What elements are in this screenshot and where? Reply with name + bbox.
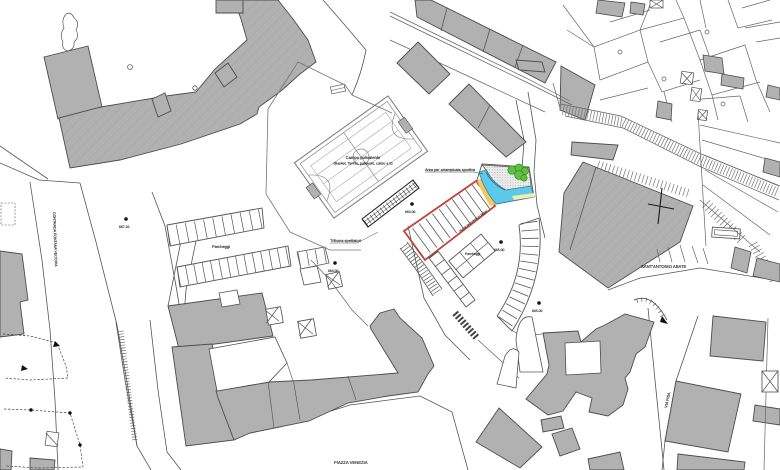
svg-text:Area per arrampicata sportiva: Area per arrampicata sportiva: [425, 168, 476, 172]
svg-text:Campo polivalente: Campo polivalente: [346, 155, 381, 160]
svg-text:667.32: 667.32: [119, 225, 129, 229]
svg-text:663.00: 663.00: [328, 269, 338, 273]
svg-text:SANT'ANTONIO ABATE: SANT'ANTONIO ABATE: [641, 264, 687, 269]
svg-text:PIAZZA VENEZIA: PIAZZA VENEZIA: [334, 460, 368, 465]
svg-text:665.00: 665.00: [532, 309, 542, 313]
svg-text:(Basket, Tennis, pallavolo, ca: (Basket, Tennis, pallavolo, calcio a 5): [333, 162, 392, 166]
svg-text:Parcheggi: Parcheggi: [212, 244, 230, 249]
svg-text:Parcheggi: Parcheggi: [465, 252, 481, 256]
svg-text:663.00: 663.00: [405, 210, 415, 214]
svg-text:Tribuna spettatori: Tribuna spettatori: [330, 238, 361, 243]
svg-text:665.00: 665.00: [494, 248, 504, 252]
